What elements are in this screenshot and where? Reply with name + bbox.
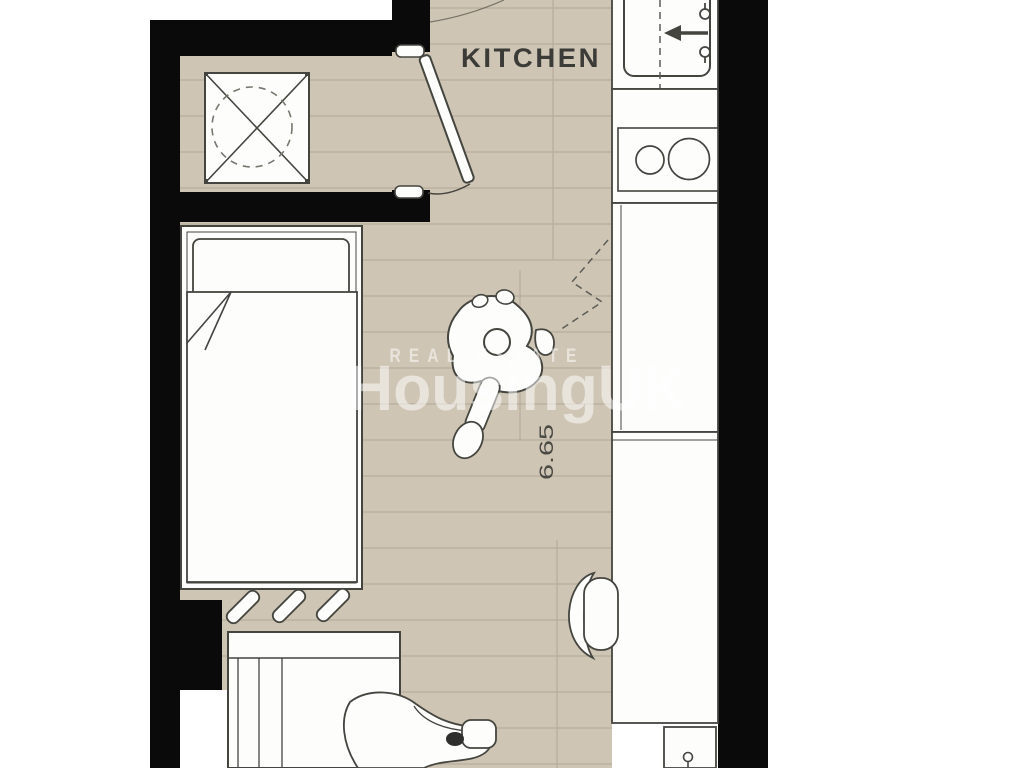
sink-basin-icon xyxy=(624,0,710,76)
watermark: REAL ESTATE HousingUK xyxy=(348,346,688,424)
floorplan-drawing: KITCHEN 6.65 REAL ESTATE HousingUK xyxy=(0,0,1024,768)
room-label-kitchen: KITCHEN xyxy=(461,43,601,73)
person-lounging-hands xyxy=(446,732,464,746)
margin-left xyxy=(0,0,150,768)
wall-shower-bottom xyxy=(180,192,392,222)
base-unit xyxy=(612,432,718,723)
wall-right xyxy=(718,0,768,768)
floorplan-canvas: KITCHEN 6.65 REAL ESTATE HousingUK xyxy=(0,0,1024,768)
dimension-label: 6.65 xyxy=(537,424,558,480)
margin-right xyxy=(768,0,1024,768)
duvet xyxy=(187,292,357,582)
wall-left xyxy=(150,20,180,768)
bed-icon xyxy=(181,226,362,589)
hob-icon xyxy=(618,128,718,191)
watermark-line2: HousingUK xyxy=(348,352,688,424)
shower-tray-icon xyxy=(204,72,309,183)
person-lounging-footrest xyxy=(462,720,496,748)
door-hinge-cap-bottom xyxy=(395,186,423,198)
wall-top xyxy=(150,20,392,56)
chair-seat xyxy=(584,578,618,650)
door-hinge-cap-top xyxy=(396,45,424,57)
margin-top xyxy=(0,0,392,20)
wall-left-pier xyxy=(180,600,222,690)
margin-bottom-left xyxy=(180,690,228,768)
